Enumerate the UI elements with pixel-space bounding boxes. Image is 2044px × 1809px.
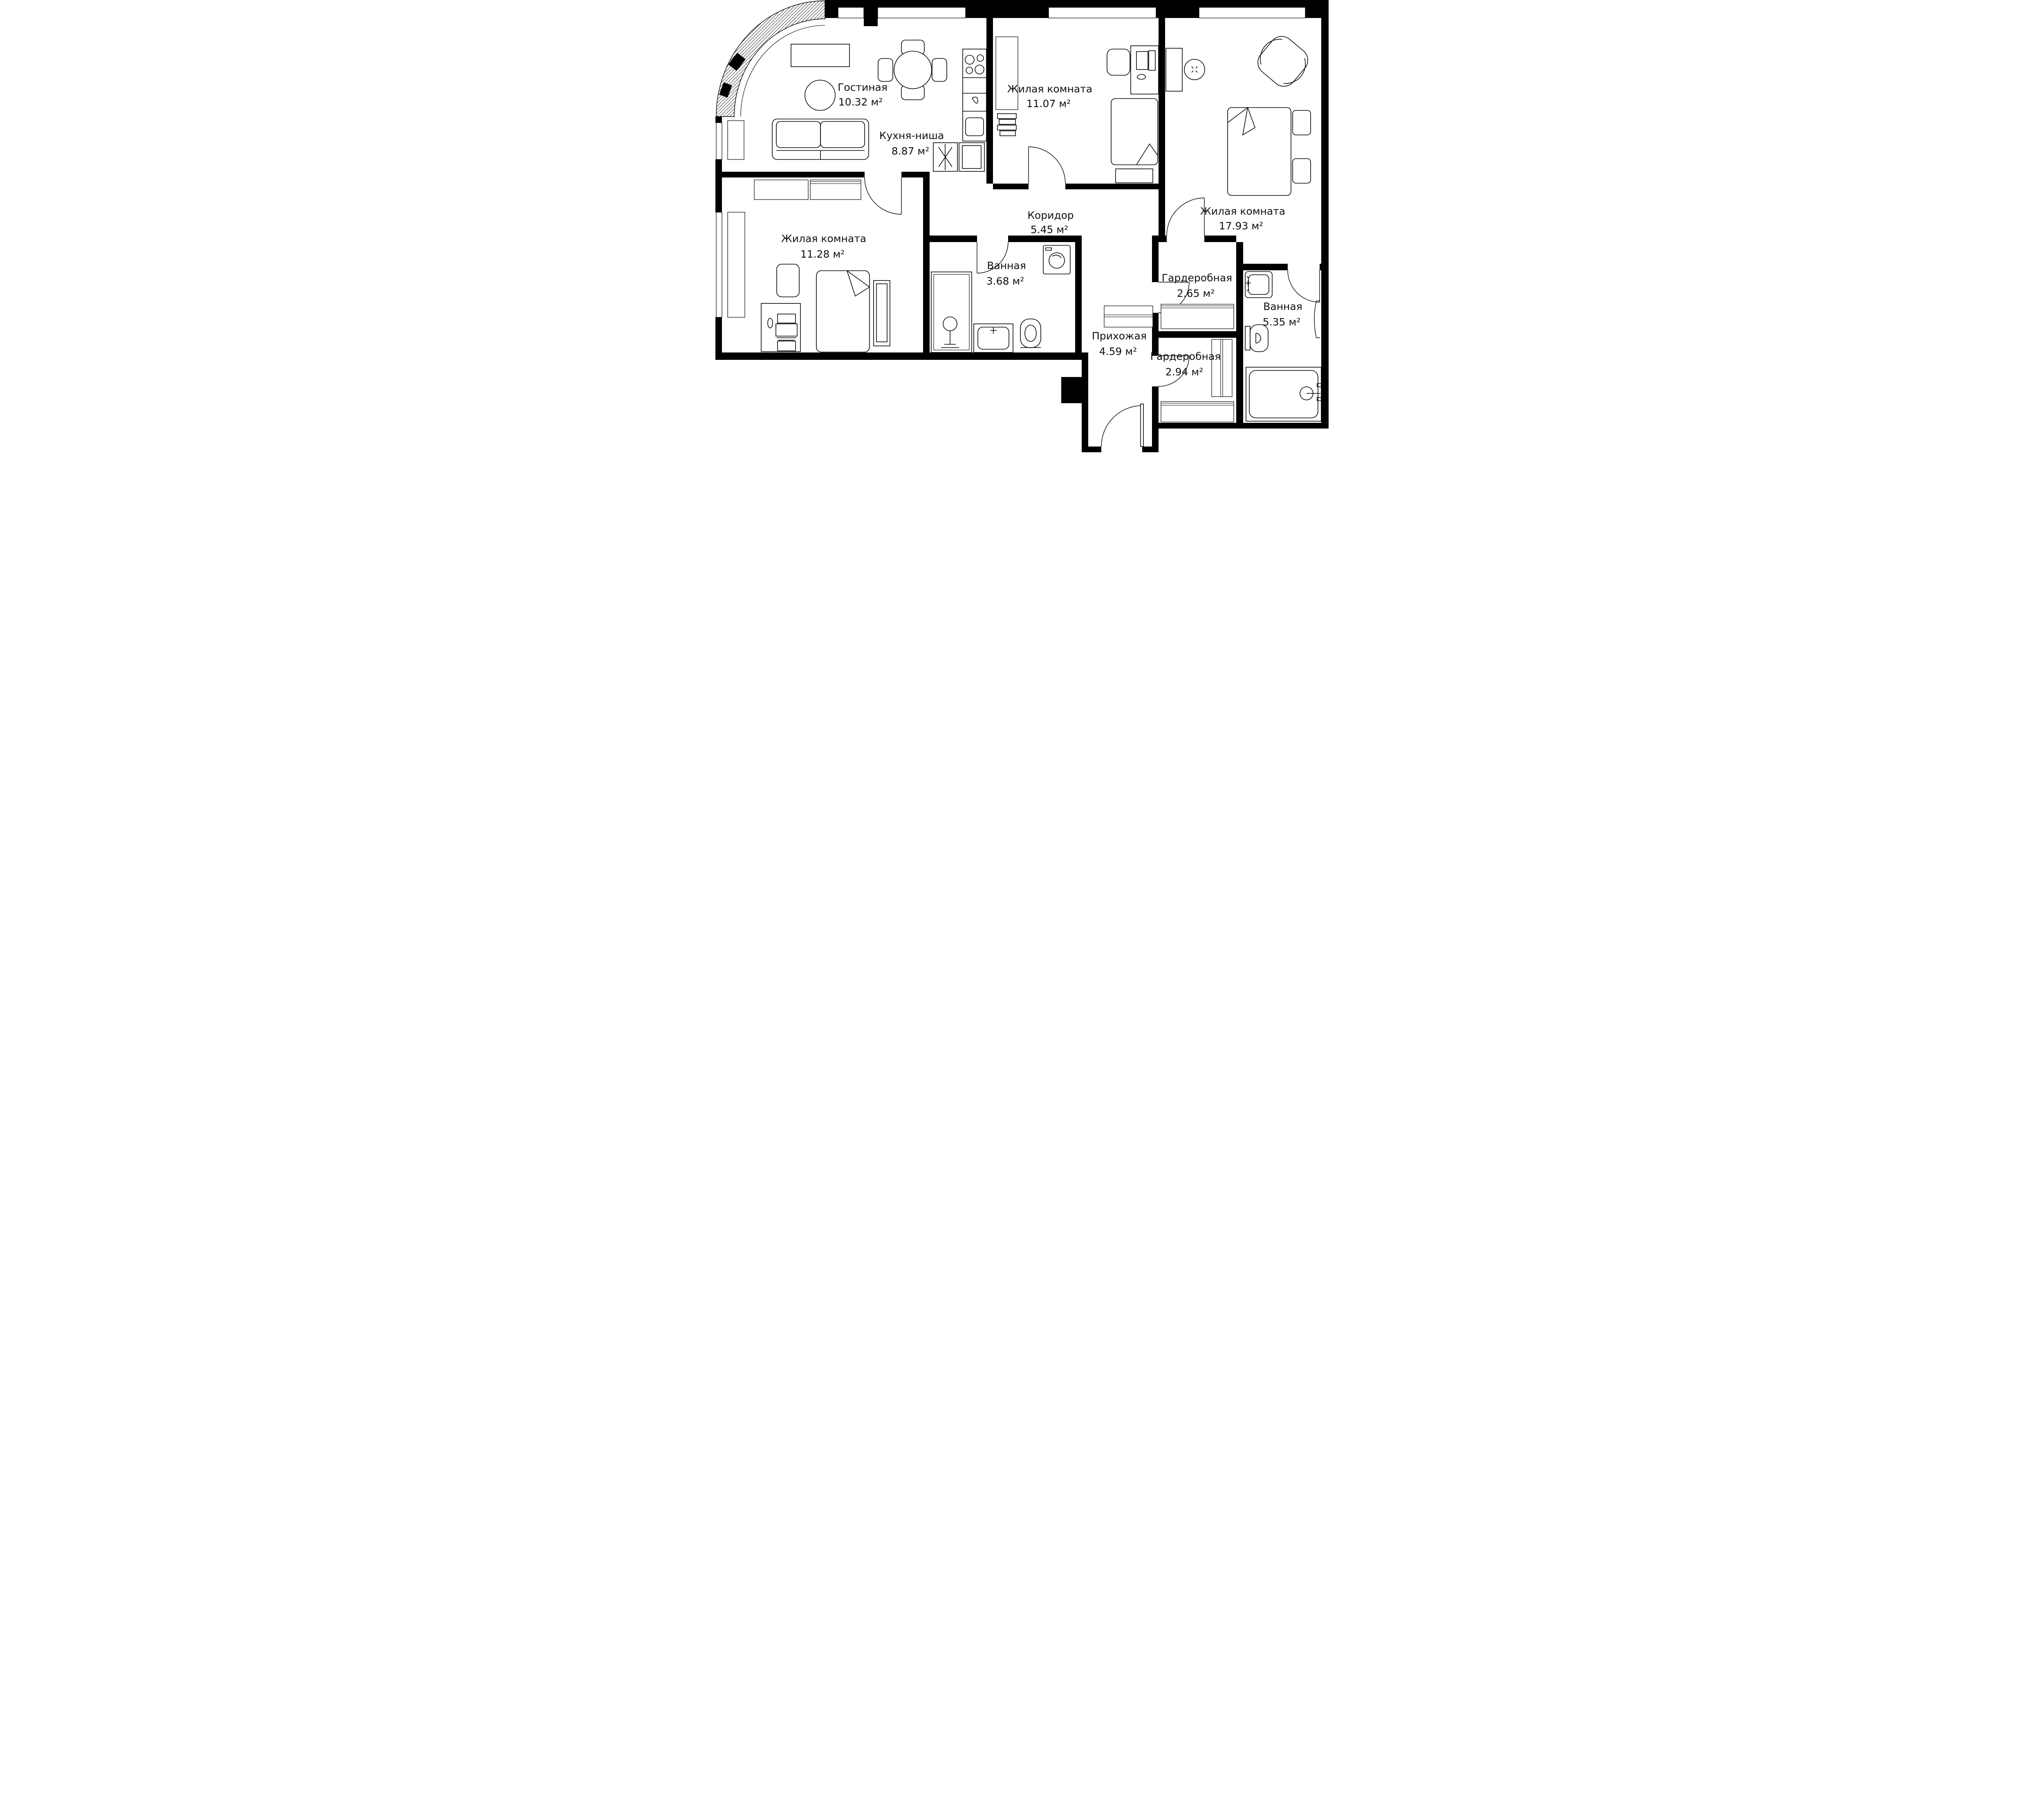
label-kuhnya: Кухня-ниша xyxy=(879,130,944,141)
area-garderobnaya-294: 2.94 м² xyxy=(1165,366,1204,378)
coat-rack xyxy=(1104,306,1153,327)
nightstand xyxy=(1116,169,1153,183)
hanging-rack xyxy=(810,180,861,200)
chair xyxy=(932,58,947,81)
label-vannaya-368: Ванная xyxy=(987,260,1026,272)
desk-chair xyxy=(777,264,799,297)
appliances xyxy=(933,143,984,171)
toilet xyxy=(1020,319,1041,348)
dining-table xyxy=(894,51,932,89)
kitchen-counter xyxy=(963,49,986,141)
area-room-1793: 17.93 м² xyxy=(1219,220,1263,232)
washing-machine xyxy=(1043,245,1070,274)
area-vannaya-368: 3.68 м² xyxy=(986,275,1024,287)
label-prihozhaya: Прихожая xyxy=(1092,330,1147,342)
sink xyxy=(1245,272,1272,298)
double-bed xyxy=(1228,108,1291,195)
label-garderobnaya-265: Гардеробная xyxy=(1162,272,1232,284)
vent-shaft xyxy=(864,5,878,26)
area-room-1107: 11.07 м² xyxy=(1026,98,1071,110)
hanging-rack-vertical xyxy=(1212,339,1232,397)
nightstand xyxy=(1293,110,1311,135)
fridge xyxy=(959,143,984,171)
furniture-wardrobe-265 xyxy=(1161,304,1234,329)
floor-plan-canvas: Гостиная 10.32 м² Кухня-ниша 8.87 м² Жил… xyxy=(715,0,1329,452)
area-gostinaya: 10.32 м² xyxy=(838,96,883,108)
bathtub xyxy=(1246,367,1321,421)
closet xyxy=(996,37,1018,110)
label-koridor: Коридор xyxy=(1027,209,1074,221)
label-gostinaya: Гостиная xyxy=(838,81,888,93)
label-room-1107: Жилая комната xyxy=(1007,83,1092,95)
hanging-rack xyxy=(1161,402,1234,422)
area-garderobnaya-265: 2.65 м² xyxy=(1177,287,1215,299)
window-room-1107 xyxy=(1049,7,1156,18)
label-vannaya-535: Ванная xyxy=(1263,301,1302,312)
entrance-door-leaf xyxy=(1141,404,1143,447)
dresser xyxy=(1166,48,1182,91)
nightstand xyxy=(1293,159,1311,183)
label-garderobnaya-294: Гардеробная xyxy=(1150,350,1221,362)
window-kitchen xyxy=(878,7,966,18)
window-room-1793 xyxy=(1199,7,1305,18)
dresser xyxy=(874,281,890,346)
single-bed xyxy=(816,271,870,352)
window-living xyxy=(838,7,864,18)
shelf-unit xyxy=(754,180,808,200)
sofa xyxy=(772,119,869,159)
label-room-1128: Жилая комната xyxy=(781,233,866,245)
tv-stand xyxy=(791,44,849,67)
furniture-hall xyxy=(1104,306,1153,327)
desk xyxy=(1131,46,1159,94)
desk-chair xyxy=(1107,49,1130,75)
chair xyxy=(878,58,893,81)
side-table xyxy=(1184,59,1205,80)
label-room-1793: Жилая комната xyxy=(1200,205,1285,217)
single-bed xyxy=(1111,99,1158,165)
area-koridor: 5.45 м² xyxy=(1031,224,1069,236)
area-kuhnya: 8.87 м² xyxy=(892,145,930,157)
floor-plan: Гостиная 10.32 м² Кухня-ниша 8.87 м² Жил… xyxy=(715,0,1329,452)
area-vannaya-535: 5.35 м² xyxy=(1263,316,1301,328)
radiator xyxy=(728,212,745,317)
coffee-table xyxy=(805,80,835,110)
window-left-upper xyxy=(716,123,722,159)
area-room-1128: 11.28 м² xyxy=(800,248,845,260)
area-prihozhaya: 4.59 м² xyxy=(1099,346,1137,357)
window-left-lower xyxy=(716,212,722,317)
radiator xyxy=(728,121,744,159)
sink xyxy=(974,324,1013,352)
monitor-books xyxy=(776,314,797,351)
toilet xyxy=(1245,325,1268,352)
